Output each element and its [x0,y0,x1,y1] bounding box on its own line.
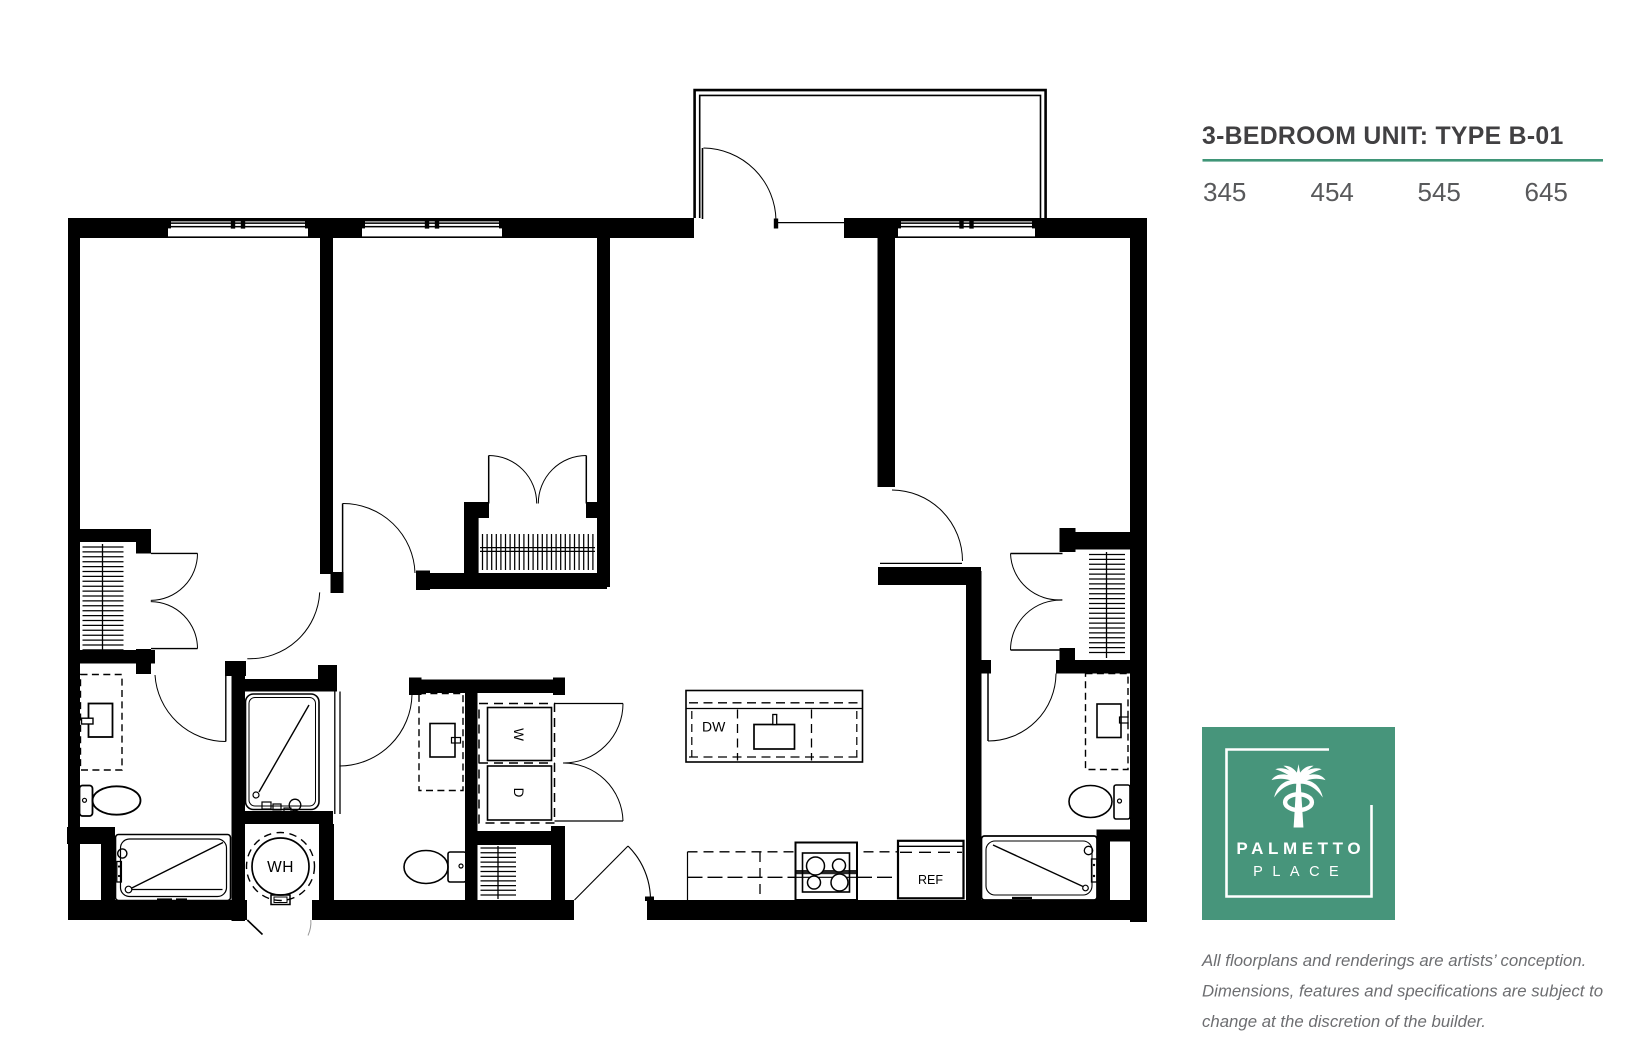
svg-text:454: 454 [1311,177,1354,207]
svg-text:PALMETTO: PALMETTO [1236,839,1365,858]
svg-text:PLACE: PLACE [1253,864,1348,880]
svg-text:Dimensions, features and speci: Dimensions, features and specifications … [1202,982,1603,1001]
svg-text:DW: DW [702,719,726,735]
svg-text:change at the discretion of th: change at the discretion of the builder. [1202,1012,1486,1031]
svg-text:REF: REF [918,873,943,887]
svg-text:D: D [511,788,526,798]
svg-text:3-BEDROOM UNIT: TYPE B-01: 3-BEDROOM UNIT: TYPE B-01 [1202,123,1564,150]
svg-text:645: 645 [1525,177,1568,207]
svg-text:All floorplans and renderings: All floorplans and renderings are artist… [1201,951,1586,970]
svg-text:345: 345 [1203,177,1246,207]
svg-text:545: 545 [1418,177,1461,207]
svg-text:WH: WH [267,859,294,876]
svg-text:W: W [511,728,526,741]
